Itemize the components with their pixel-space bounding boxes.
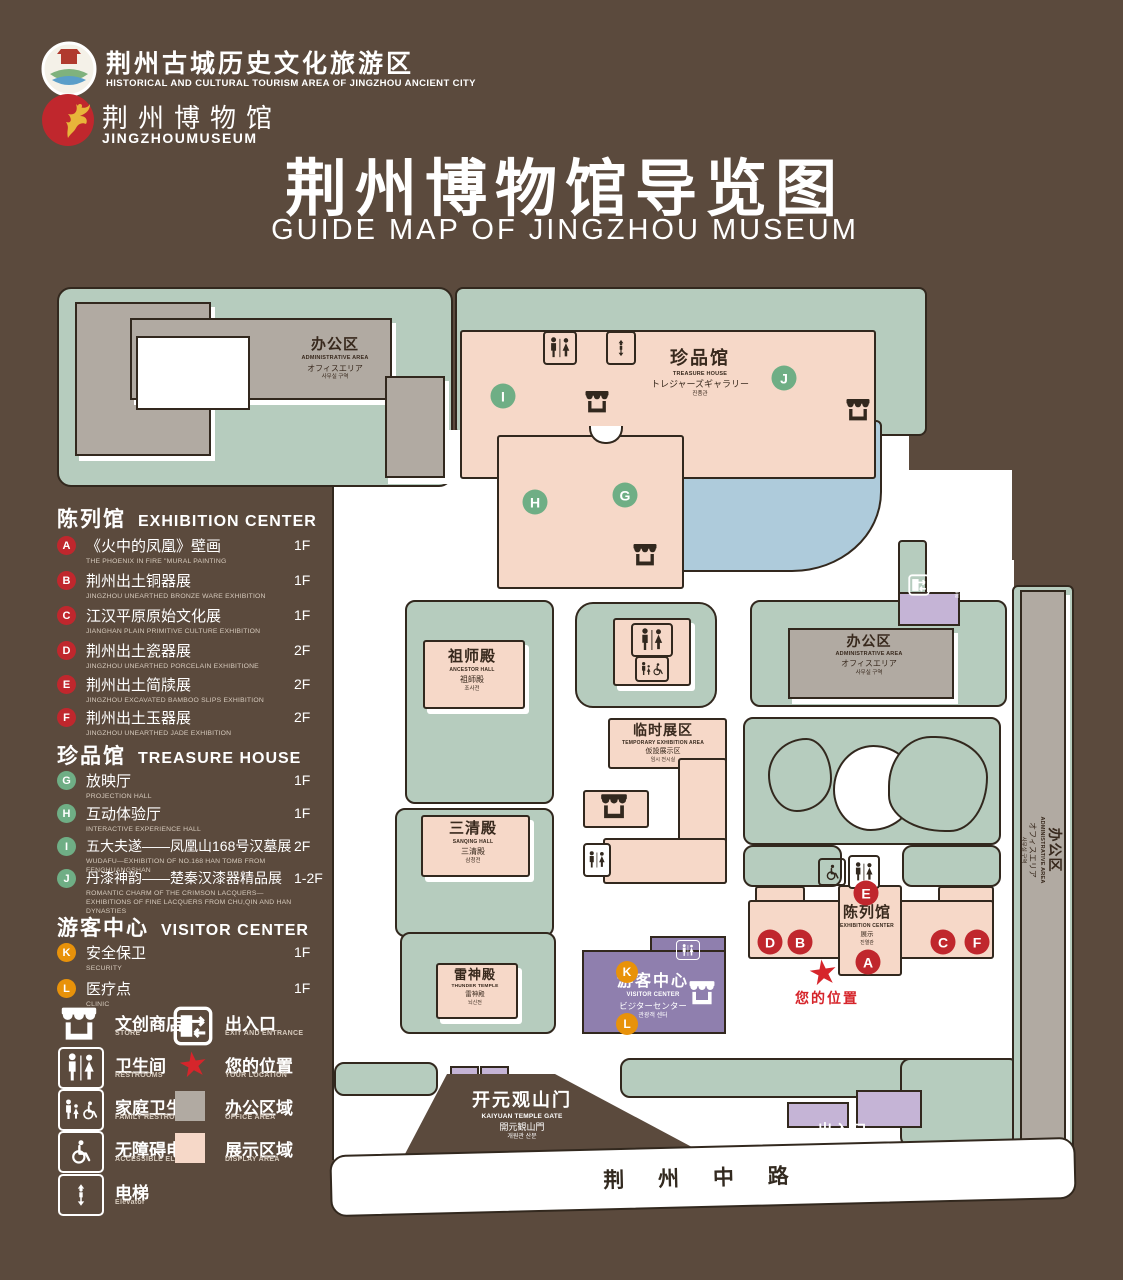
legend-section-exhibition: 陈列馆EXHIBITION CENTER (57, 503, 317, 533)
badge-D: D (57, 641, 76, 660)
map-marker-D: D (758, 930, 783, 955)
map-marker-L: L (616, 1013, 638, 1035)
legend-section-visitor: 游客中心VISITOR CENTER (57, 912, 309, 942)
badge-B: B (57, 571, 76, 590)
badge-J: J (57, 869, 76, 888)
restroom-icon (676, 940, 700, 960)
display-area-sublabel: DISPLAY AREA (225, 1156, 280, 1163)
your-location-legend-sublabel: YOUR LOCATION (225, 1072, 287, 1079)
restroom-icon (543, 331, 577, 365)
map-marker-K: K (616, 961, 638, 983)
badge-I: I (57, 837, 76, 856)
store-icon (632, 543, 658, 567)
tourism-area-logo (40, 40, 98, 98)
tourism-logo-icon (40, 40, 98, 98)
legend-item-B: B 荆州出土铜器展 JINGZHOU UNEARTHED BRONZE WARE… (57, 570, 367, 601)
location-star-icon: ★ (176, 1046, 211, 1084)
restroom-icon (583, 843, 611, 877)
family-restroom-icon (635, 656, 669, 682)
map-plaza (860, 470, 1012, 562)
legend-item-H: H 互动体验厅 INTERACTIVE EXPERIENCE HALL 1F (57, 803, 367, 834)
legend-item-E: E 荆州出土简牍展 JINGZHOU EXCAVATED BAMBOO SLIP… (57, 674, 367, 705)
guide-map-poster: 荆州古城历史文化旅游区 HISTORICAL AND CULTURAL TOUR… (0, 0, 1123, 1280)
admin-courtyard (136, 336, 250, 410)
ancestor-hall-label: 祖师殿ANCESTOR HALL 祖師殿조사전 (448, 648, 496, 692)
map-marker-H: H (523, 490, 548, 515)
badge-G: G (57, 771, 76, 790)
legend-item-J: J 丹漆神韵——楚秦汉漆器精品展 ROMANTIC CHARM OF THE C… (57, 868, 367, 917)
lawn (334, 1062, 438, 1096)
display-area-swatch (175, 1133, 205, 1163)
temporary-exhibition-label: 临时展区TEMPORARY EXHIBITION AREA 仮設展示区임시 전시… (622, 722, 704, 763)
legend-section-treasure: 珍品馆TREASURE HOUSE (57, 740, 301, 770)
store-icon (58, 1006, 100, 1042)
map-marker-F: F (965, 930, 990, 955)
lawn (902, 845, 1001, 887)
family-restroom-icon (58, 1089, 104, 1131)
garden-bed (768, 738, 832, 812)
exit-icon (908, 574, 930, 596)
map-marker-A: A (856, 950, 881, 975)
admin-top-label: 办公区ADMINISTRATIVE AREA オフィスエリア사무실 구역 (301, 336, 368, 381)
garden-bed (888, 736, 988, 832)
legend-item-K: K 安全保卫 SECURITY 1F (57, 942, 367, 973)
accessible-elevator-icon (58, 1131, 104, 1173)
legend-item-A: A 《火中的凤凰》壁画 THE PHOENIX IN FIRE "MURAL P… (57, 535, 367, 566)
tourism-area-title: 荆州古城历史文化旅游区 (106, 44, 414, 80)
map-marker-C: C (931, 930, 956, 955)
store-icon (584, 390, 610, 414)
map-marker-G: G (613, 483, 638, 508)
elevator-sublabel: Elevator (115, 1199, 145, 1206)
map-marker-J: J (772, 366, 797, 391)
exit-sublabel: EXIT AND ENTRANCE (225, 1030, 303, 1037)
legend-item-L: L 医疗点 CLINIC 1F (57, 978, 367, 1009)
badge-H: H (57, 804, 76, 823)
legend-item-C: C 江汉平原原始文化展 JIANGHAN PLAIN PRIMITIVE CUL… (57, 605, 367, 636)
map-marker-I: I (491, 384, 516, 409)
treasure-label: 珍品馆 TREASURE HOUSE トレジャーズギャラリー 진품관 (651, 348, 749, 398)
admin-building-top-left (385, 376, 445, 478)
accessible-elevator-icon (818, 858, 846, 886)
kaiyuan-gate-label: 开元观山门 KAIYUAN TEMPLE GATE 開元観山門 개원관 산문 (472, 1090, 572, 1141)
museum-phoenix-icon (42, 94, 94, 146)
elevator-icon (58, 1174, 104, 1216)
tourism-area-subtitle: HISTORICAL AND CULTURAL TOURISM AREA OF … (106, 78, 476, 89)
temporary-exhibition-building (603, 838, 727, 884)
restroom-icon (631, 623, 673, 657)
exit-icon (172, 1006, 214, 1046)
badge-E: E (57, 675, 76, 694)
badge-F: F (57, 708, 76, 727)
thunder-temple-label: 雷神殿THUNDER TEMPLE 雷神殿뇌신전 (451, 967, 498, 1006)
map-marker-B: B (788, 930, 813, 955)
legend-item-D: D 荆州出土瓷器展 JINGZHOU UNEARTHED PORCELAIN E… (57, 640, 367, 671)
sanqing-hall-label: 三清殿SANQING HALL 三清殿삼청전 (449, 820, 497, 864)
restroom-icon (58, 1047, 104, 1089)
admin-east-label: 办公区ADMINISTRATIVE AREA オフィスエリア사무실 구역 (1019, 816, 1063, 883)
museum-logo (42, 94, 94, 146)
badge-A: A (57, 536, 76, 555)
elevator-icon (606, 331, 636, 365)
map-marker-E: E (854, 881, 879, 906)
restrooms-sublabel: RESTROOMS (115, 1072, 163, 1079)
road-label: 荆 州 中 路 (603, 1160, 803, 1195)
exhibition-center-label: 陈列馆EXHIBITION CENTER 展示진열관 (840, 904, 894, 946)
office-area-sublabel: OFFICE AREA (225, 1114, 276, 1121)
your-location-star: ★ (806, 954, 841, 992)
legend-item-F: F 荆州出土玉器展 JINGZHOU UNEARTHED JADE EXHIBI… (57, 707, 367, 738)
badge-C: C (57, 606, 76, 625)
exit-label-north: 出入口 EXIT AND ENTRANCE 出入口 출입구 (929, 554, 995, 600)
legend-item-G: G 放映厅 PROJECTION HALL 1F (57, 770, 367, 801)
badge-L: L (57, 979, 76, 998)
store-icon (600, 793, 628, 820)
store-icon (845, 398, 871, 422)
page-subtitle: GUIDE MAP OF JINGZHOU MUSEUM (210, 214, 920, 247)
office-area-swatch (175, 1091, 205, 1121)
your-location-label: 您的位置 (795, 988, 859, 1008)
admin-right-label: 办公区ADMINISTRATIVE AREA オフィスエリア사무실 구역 (835, 633, 902, 677)
store-sublabel: STORE (115, 1030, 141, 1037)
store-icon (688, 980, 716, 1006)
badge-K: K (57, 943, 76, 962)
